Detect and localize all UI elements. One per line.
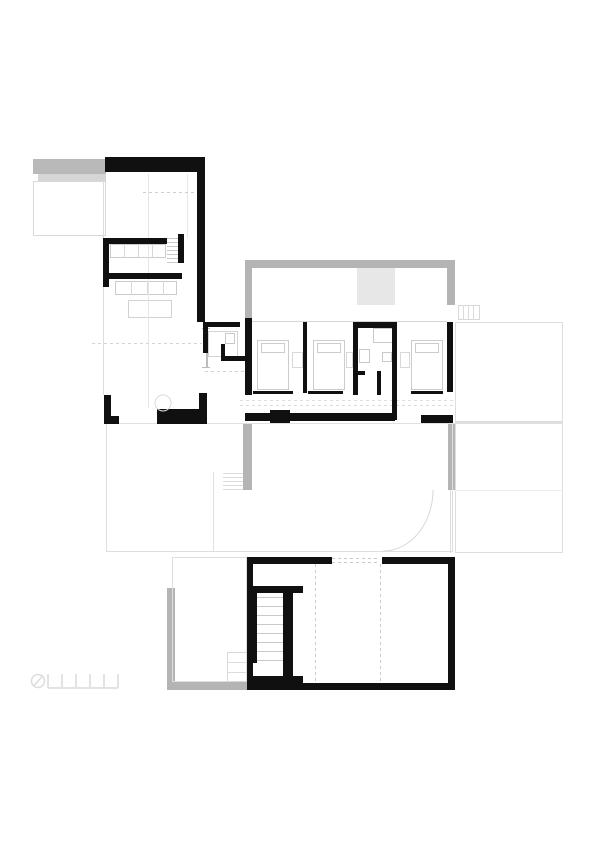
window-upper-east-tick-bottom (202, 367, 210, 368)
garage-stair-tread-4 (257, 624, 283, 625)
entry-partition-h (221, 356, 248, 361)
yard-wall-south-gray (167, 682, 250, 690)
sill-bedroom-3 (411, 391, 443, 394)
bath-west-wall (353, 322, 358, 395)
bath-toilet (359, 349, 370, 363)
garage-stair-tread-8 (257, 660, 283, 661)
kitchen-island-div-2 (147, 281, 148, 295)
wing-south-wall-east (421, 415, 453, 423)
east-steps-line-3 (473, 305, 474, 320)
bath-inner-wall-h (358, 371, 365, 375)
garage-stair-bottom-wall (253, 676, 303, 684)
garage-south-wall (247, 683, 455, 690)
nightstand-3 (400, 352, 410, 368)
upper-west-wall-corner (111, 416, 119, 424)
kitchen-counter-div-1 (124, 244, 125, 258)
upper-grid-line-v1 (148, 174, 149, 408)
entry-west-wall (203, 322, 208, 353)
upper-stair-tread-5 (167, 254, 178, 255)
upper-south-wall (157, 409, 205, 424)
bed-2-pillow (317, 343, 341, 353)
garage-stair-rail (253, 593, 257, 663)
entry-dash-line (205, 371, 245, 372)
nightstand-2 (346, 352, 353, 368)
court-step-2 (223, 477, 243, 478)
upper-east-wall (197, 157, 205, 322)
kitchen-island-div-3 (163, 281, 164, 295)
upper-west-wall-south (104, 395, 111, 424)
garage-stair-tread-1 (257, 597, 283, 598)
wing-south-wall-notch (270, 410, 290, 423)
kitchen-island (115, 281, 177, 295)
garage-north-wall-west (252, 557, 332, 564)
deck-dash-line-2 (240, 405, 455, 406)
kitchen-north-wall (109, 238, 167, 244)
garage-north-wall-east (382, 557, 455, 564)
wing-north-wall-gray (245, 260, 455, 268)
upper-stair-tread-7 (167, 262, 178, 263)
entry-fixture-basin (225, 333, 235, 344)
terrace-grid-line (213, 472, 214, 552)
court-step-4 (223, 485, 243, 486)
patio-outline-south (455, 422, 563, 553)
sill-bedroom-1 (253, 391, 293, 394)
upper-stair-wall (178, 234, 184, 263)
site-edge-left-lower (103, 287, 104, 395)
garage-stair-stem-wall (283, 593, 293, 681)
skylight-shaded-panel (357, 268, 395, 305)
site-edge-left-upper (103, 181, 104, 238)
kitchen-south-wall (109, 273, 182, 279)
hall-door-track (252, 321, 447, 322)
garage-stair-tread-7 (257, 651, 283, 652)
carport-roof-band (33, 159, 106, 174)
kitchen-island-div-1 (131, 281, 132, 295)
bedroom-partition-wall (303, 322, 307, 393)
roof-dash-line-2 (380, 564, 381, 683)
upper-grid-line-v2 (187, 174, 188, 238)
court-step-5 (223, 489, 243, 490)
sill-bedroom-2 (308, 391, 343, 394)
court-edge-line (450, 490, 451, 553)
wing-west-wall (245, 318, 252, 395)
garage-entry-steps-1 (332, 558, 378, 559)
upper-north-wall (105, 157, 205, 172)
north-arrow-slash (34, 676, 44, 687)
kitchen-counter-div-2 (138, 244, 139, 258)
upper-dash-line-1 (143, 192, 203, 193)
upper-stair-tread-4 (167, 250, 178, 251)
kitchen-west-wall (103, 238, 109, 287)
court-step-3 (223, 481, 243, 482)
entry-north-wall (205, 322, 240, 327)
garage-entry-steps-2 (332, 562, 378, 563)
garage-stair-top-wall (253, 586, 303, 593)
kitchen-counter-div-3 (152, 244, 153, 258)
patio-mid-line (455, 490, 563, 491)
wing-south-wall (245, 413, 395, 421)
garage-stair-tread-2 (257, 606, 283, 607)
bath-sink-counter (373, 328, 393, 343)
bed-1-pillow (261, 343, 285, 353)
east-steps-line-2 (468, 305, 469, 320)
carport-outline (33, 181, 106, 236)
bath-shower (382, 352, 392, 362)
bath-east-wall (392, 328, 397, 420)
carport-roof-band-light (38, 174, 106, 181)
wing-east-wall-gray (447, 268, 455, 305)
upper-stair-tread-3 (167, 246, 178, 247)
court-step-1 (223, 473, 243, 474)
upper-stair-tread-6 (167, 258, 178, 259)
dining-table (128, 300, 172, 318)
bath-inner-wall-v (377, 371, 381, 395)
garage-stair-tread-5 (257, 633, 283, 634)
plan-canvas (0, 0, 600, 849)
roof-dash-line-1 (315, 564, 316, 683)
garage-east-wall (448, 557, 455, 690)
upper-dash-line-2 (92, 343, 202, 344)
bed-3-pillow (415, 343, 439, 353)
terrace-outline (106, 423, 453, 552)
wing-east-steps-box (458, 305, 480, 320)
east-steps-line-1 (463, 305, 464, 320)
patio-outline-north (455, 322, 563, 422)
garage-stair-tread-3 (257, 615, 283, 616)
nightstand-1 (292, 352, 303, 368)
wing-east-wall (447, 322, 453, 392)
wing-west-wall-gray (245, 268, 252, 318)
garage-stair-tread-6 (257, 642, 283, 643)
upper-stair-tread-1 (167, 238, 178, 239)
upper-stair-tread-2 (167, 242, 178, 243)
north-arrow-circle (32, 675, 45, 688)
deck-dash-line-1 (240, 400, 455, 401)
